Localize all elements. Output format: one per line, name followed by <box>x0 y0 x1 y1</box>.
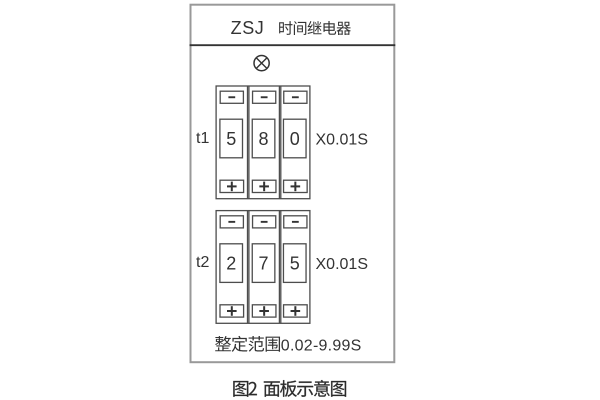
svg-text:X0.01S: X0.01S <box>316 256 368 273</box>
svg-text:8: 8 <box>259 129 269 149</box>
svg-text:ZSJ: ZSJ <box>231 18 265 38</box>
svg-text:5: 5 <box>290 254 300 274</box>
svg-text:t2: t2 <box>196 254 209 271</box>
svg-text:0.02-9.99S: 0.02-9.99S <box>281 337 362 354</box>
svg-text:0: 0 <box>290 129 300 149</box>
svg-text:t1: t1 <box>196 130 209 147</box>
svg-text:2: 2 <box>226 254 236 274</box>
svg-text:5: 5 <box>226 129 236 149</box>
svg-text:X0.01S: X0.01S <box>316 132 368 149</box>
svg-text:7: 7 <box>259 254 269 274</box>
